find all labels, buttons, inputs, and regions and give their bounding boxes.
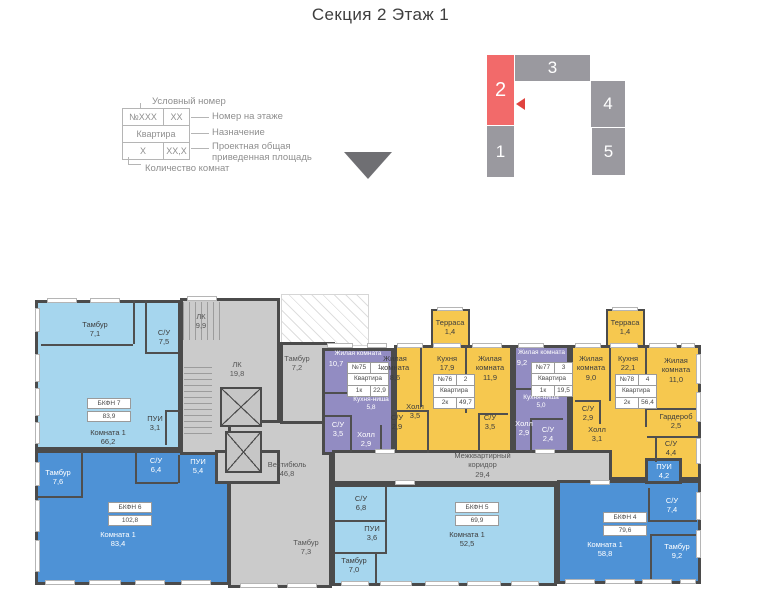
- section-block-3[interactable]: 3: [515, 55, 590, 81]
- window: [89, 580, 121, 585]
- legend-dash: [191, 117, 209, 118]
- section-map: 2 3 4 1 5: [487, 55, 627, 179]
- room-label: Кухня-ниша5,8: [340, 396, 402, 412]
- room-label: Комната 152,5: [437, 530, 497, 549]
- room-label-tambur72: Тамбур7,2: [275, 354, 319, 373]
- window: [35, 422, 40, 444]
- window: [397, 343, 423, 348]
- room-label-corridor: Межквартирный коридор29,4: [440, 451, 525, 479]
- room-label: Кухня22,1: [608, 354, 648, 373]
- legend-note: Номер на этаже: [212, 111, 283, 122]
- apartment-info-78: №784Квартира2к56,4: [615, 374, 657, 409]
- room-label: С/У7,5: [142, 328, 186, 347]
- door-opening: [535, 449, 555, 454]
- wall-partition: [385, 487, 387, 553]
- room-label: Тамбур7,0: [329, 556, 379, 575]
- down-arrow-icon: [344, 152, 392, 179]
- window: [467, 581, 501, 586]
- room-label: ПУИ3,6: [352, 524, 392, 543]
- room-label: С/У6,4: [136, 456, 176, 475]
- section-block-1[interactable]: 1: [487, 126, 514, 177]
- room-label: С/У7,4: [652, 496, 692, 515]
- door-opening: [35, 308, 40, 332]
- room-label-lk1: ЛК9,9: [181, 312, 221, 331]
- legend-sample-box: №XXXXX Квартира XXX,X: [122, 108, 190, 160]
- room-label: Комната 183,4: [88, 530, 148, 549]
- window: [649, 343, 677, 348]
- room-label: С/У2,9: [575, 404, 601, 423]
- terrace-parapet: [612, 307, 638, 311]
- door-opening: [590, 480, 610, 485]
- window: [696, 438, 701, 464]
- room-label: Холл2,9: [510, 419, 538, 438]
- window: [472, 343, 502, 348]
- legend-area: XX,X: [163, 143, 189, 159]
- room-area: 10,7: [326, 359, 346, 368]
- room-label: Тамбур7,1: [70, 320, 120, 339]
- floor-plan-page: Секция 2 Этаж 1 Условный номер №XXXXX Кв…: [0, 0, 761, 600]
- section-block-4[interactable]: 4: [591, 81, 625, 127]
- room-label: Жилая комната11,0: [653, 356, 699, 384]
- window: [696, 492, 701, 520]
- apartment-info-77: №773Квартира1к19,5: [531, 362, 573, 397]
- terrace-parapet: [437, 307, 463, 311]
- apartment-info-76: №762Квартира2к49,7: [433, 374, 475, 409]
- window: [518, 343, 544, 348]
- legend-bottom-label: Количество комнат: [145, 163, 229, 174]
- room-label: Холл3,1: [583, 425, 611, 444]
- wall-partition: [165, 410, 180, 412]
- section-block-5[interactable]: 5: [592, 128, 625, 175]
- legend-num: №XXX: [123, 109, 163, 125]
- legend-note: Назначение: [212, 127, 265, 138]
- room-label: Кухня17,9: [425, 354, 469, 373]
- wall-partition: [650, 534, 652, 584]
- legend-floor-num: XX: [163, 109, 189, 125]
- wall-partition: [648, 520, 697, 522]
- door-opening: [395, 480, 415, 485]
- room-label: С/У2,9: [383, 413, 411, 432]
- window: [425, 581, 459, 586]
- room-label: Комната 166,2: [78, 428, 138, 447]
- section-block-2-active[interactable]: 2: [487, 55, 514, 125]
- room-label: С/У6,8: [341, 494, 381, 513]
- apartment-info-bkfn5: БКФН 569,9: [455, 502, 499, 528]
- door-opening: [287, 583, 317, 588]
- room-label: Гардероб2,5: [653, 412, 699, 431]
- room-label-terrace: Терраса1,4: [427, 318, 473, 337]
- room-label: Тамбур7,6: [35, 468, 81, 487]
- wall-partition: [145, 352, 178, 354]
- room-label: С/У2,4: [535, 425, 561, 444]
- room-label: Жилая комната9,0: [573, 354, 609, 382]
- room-label: С/У3,5: [325, 420, 351, 439]
- wall-partition: [420, 345, 422, 407]
- window: [565, 579, 595, 584]
- wall-partition: [41, 344, 133, 346]
- legend-purpose: Квартира: [123, 125, 189, 143]
- room-label: Кухня-ниша5,0: [505, 394, 577, 410]
- room-label: Тамбур9,2: [657, 542, 697, 561]
- window: [181, 580, 211, 585]
- window: [605, 579, 635, 584]
- window: [380, 581, 412, 586]
- window: [35, 354, 40, 382]
- wall-partition: [648, 488, 650, 521]
- room-label: Комната 158,8: [575, 540, 635, 559]
- window: [35, 388, 40, 416]
- room-label: Холл2,9: [352, 430, 380, 449]
- door-opening: [240, 583, 278, 588]
- wall-partition: [575, 400, 601, 402]
- floor-plan: ЛК9,9 ЛК19,8 Тамбур7,2 Вестибюль46,8 Там…: [35, 292, 701, 592]
- window: [35, 540, 40, 572]
- window: [367, 343, 387, 348]
- door-opening: [642, 579, 672, 584]
- wall-partition: [325, 415, 352, 417]
- room-label-terrace: Терраса1,4: [602, 318, 648, 337]
- door-opening: [433, 343, 461, 348]
- elevator-icon: [220, 387, 262, 427]
- room-label: ПУИ3,1: [135, 414, 175, 433]
- window: [187, 296, 217, 301]
- legend-dash: [191, 148, 209, 149]
- window: [681, 343, 695, 348]
- wall-partition: [81, 452, 83, 498]
- room-label: Жилая комната11,9: [472, 354, 508, 382]
- room-label: С/У3,5: [476, 413, 504, 432]
- door-opening: [610, 343, 638, 348]
- page-title: Секция 2 Этаж 1: [0, 5, 761, 25]
- window: [35, 500, 40, 532]
- window: [511, 581, 539, 586]
- room-label-lk2: ЛК19,8: [217, 360, 257, 379]
- room-label: Жилая комната: [513, 349, 570, 357]
- room-label-vestibule: Вестибюль46,8: [257, 460, 317, 479]
- apartment-info-bkfn4: БКФН 479,6: [603, 512, 647, 538]
- room-area: 9,2: [514, 358, 530, 367]
- door-opening: [375, 449, 395, 454]
- window: [45, 580, 75, 585]
- window: [90, 298, 120, 303]
- wall-partition: [335, 552, 387, 554]
- wall-partition: [38, 496, 83, 498]
- room-label: С/У4,4: [657, 439, 685, 458]
- window: [327, 343, 353, 348]
- room-label: Жилая комната8,6: [377, 354, 413, 382]
- wall-partition: [135, 482, 178, 484]
- legend-connector: [128, 157, 141, 165]
- room-label: ПУИ5,4: [179, 457, 217, 476]
- window: [680, 579, 696, 584]
- stairs-icon: [184, 362, 212, 434]
- apartment-info-bkfn7: БКФН 783,9: [87, 398, 131, 424]
- wall-partition: [650, 534, 698, 536]
- legend-title: Условный номер: [152, 96, 226, 107]
- room-label-tambur73: Тамбур7,3: [284, 538, 328, 557]
- window: [135, 580, 165, 585]
- section-marker-icon: [516, 98, 525, 110]
- wall-partition: [133, 300, 135, 344]
- void-hatch: [281, 294, 369, 346]
- apartment-info-bkfn6: БКФН 6102,8: [108, 502, 152, 528]
- wall-partition: [335, 520, 385, 522]
- room-label: ПУИ4,2: [644, 462, 684, 481]
- legend-dash: [191, 133, 209, 134]
- window: [575, 343, 601, 348]
- legend-note: Проектная общая приведенная площадь: [212, 141, 324, 163]
- door-opening: [341, 581, 369, 586]
- window: [47, 298, 77, 303]
